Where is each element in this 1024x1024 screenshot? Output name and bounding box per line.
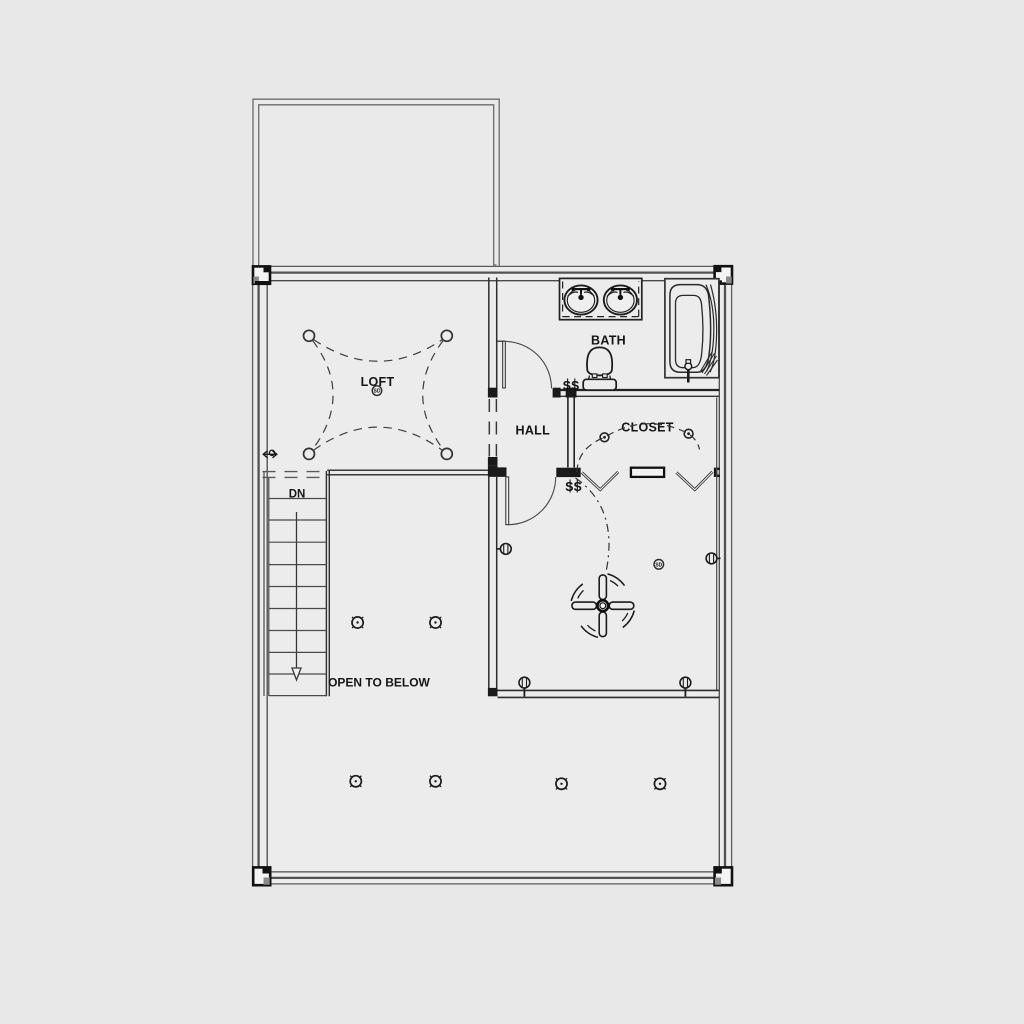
svg-text:CLOSET: CLOSET [621,421,674,435]
svg-text:SS: SS [563,379,580,393]
svg-text:DN: DN [289,489,306,501]
svg-text:SD: SD [655,562,662,568]
svg-text:SS: SS [565,480,582,494]
svg-text:LOFT: LOFT [361,375,395,389]
svg-text:SD: SD [374,389,381,395]
svg-text:BATH: BATH [591,334,626,348]
svg-text:HALL: HALL [516,424,551,438]
svg-text:OPEN TO BELOW: OPEN TO BELOW [328,676,430,690]
